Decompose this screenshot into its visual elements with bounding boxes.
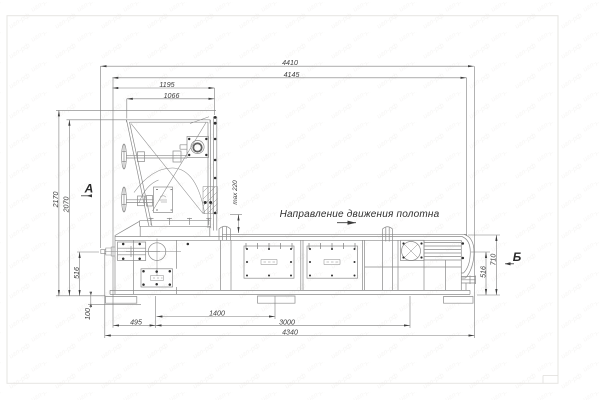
svg-text:4145: 4145 [284, 71, 300, 79]
svg-text:2070: 2070 [63, 197, 71, 214]
svg-text:1195: 1195 [159, 81, 174, 89]
svg-text:А: А [84, 182, 94, 196]
svg-text:max 220: max 220 [232, 180, 239, 205]
svg-text:1400: 1400 [209, 310, 225, 318]
svg-text:516: 516 [479, 266, 487, 278]
svg-text:3000: 3000 [279, 318, 295, 326]
svg-text:1066: 1066 [164, 92, 180, 100]
svg-text:495: 495 [130, 318, 142, 326]
svg-text:4340: 4340 [282, 329, 298, 337]
svg-text:Б: Б [513, 250, 522, 264]
svg-text:710: 710 [490, 254, 498, 266]
svg-text:100: 100 [84, 308, 92, 320]
svg-text:Направление движения полотна: Направление движения полотна [280, 209, 440, 220]
svg-text:4410: 4410 [282, 59, 298, 67]
svg-text:2170: 2170 [52, 192, 60, 209]
svg-text:516: 516 [73, 267, 81, 279]
